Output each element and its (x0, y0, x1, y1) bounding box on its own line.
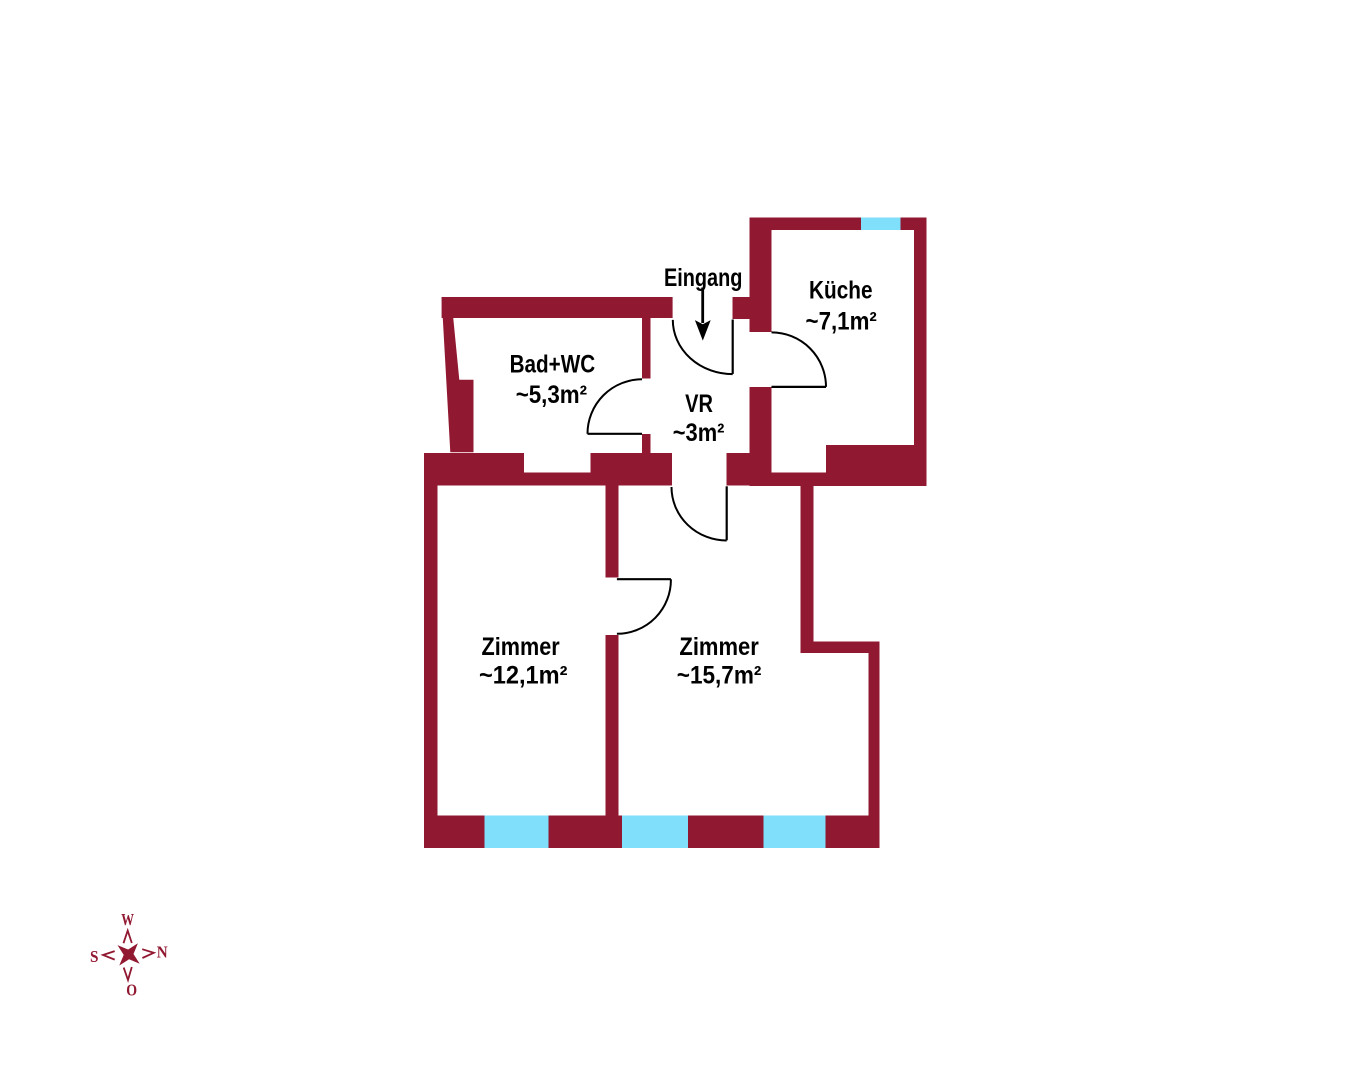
svg-text:Bad+WC: Bad+WC (510, 351, 596, 379)
svg-text:~12,1m²: ~12,1m² (479, 662, 568, 690)
svg-text:Küche: Küche (809, 276, 873, 304)
svg-text:Zimmer: Zimmer (482, 633, 560, 661)
svg-text:~7,1m²: ~7,1m² (806, 308, 877, 336)
svg-text:~5,3m²: ~5,3m² (516, 381, 587, 409)
svg-text:~3m²: ~3m² (673, 419, 725, 447)
svg-text:O: O (126, 980, 137, 999)
svg-text:N: N (157, 942, 169, 961)
svg-text:Zimmer: Zimmer (679, 633, 759, 661)
svg-text:VR: VR (685, 390, 713, 418)
svg-text:W: W (121, 910, 134, 929)
svg-text:~15,7m²: ~15,7m² (677, 662, 762, 690)
svg-text:S: S (90, 947, 99, 966)
svg-text:Eingang: Eingang (664, 264, 743, 292)
